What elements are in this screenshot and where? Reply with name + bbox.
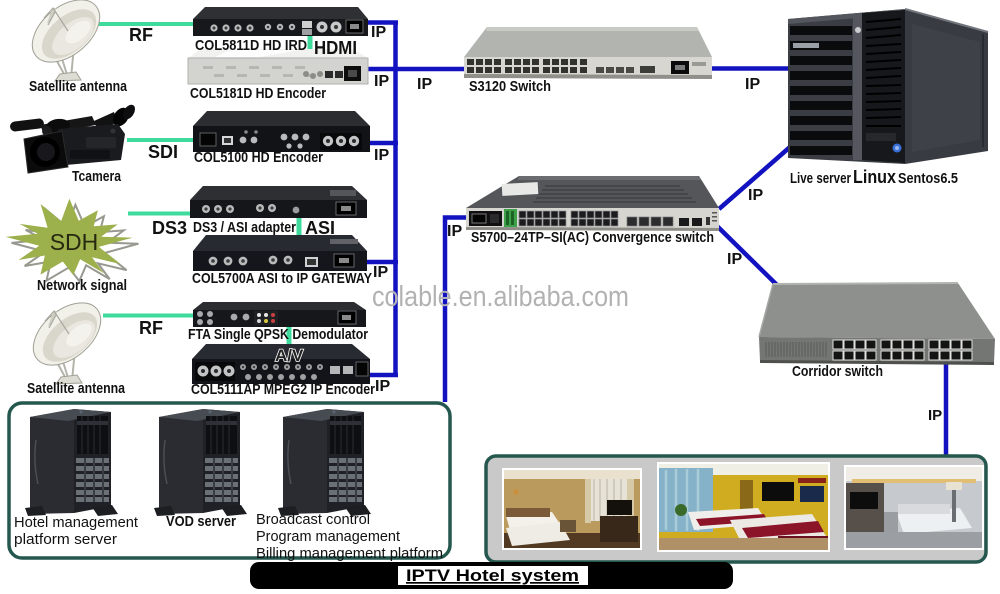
svg-text:VOD server: VOD server bbox=[166, 513, 236, 530]
svg-text:IP: IP bbox=[748, 187, 763, 204]
svg-text:Linux: Linux bbox=[853, 167, 896, 187]
svg-text:IP: IP bbox=[373, 264, 388, 281]
svg-text:Program management: Program management bbox=[256, 528, 401, 545]
svg-text:IPTV Hotel system: IPTV Hotel system bbox=[406, 566, 579, 585]
svg-text:IP: IP bbox=[727, 251, 742, 268]
svg-text:S3120 Switch: S3120 Switch bbox=[469, 78, 551, 95]
svg-text:Satellite antenna: Satellite antenna bbox=[29, 78, 128, 95]
svg-text:A/V: A/V bbox=[275, 346, 304, 365]
svg-text:SDI: SDI bbox=[148, 142, 178, 162]
svg-text:platform server: platform server bbox=[14, 531, 117, 548]
svg-text:COL5111AP MPEG2 IP Encoder: COL5111AP MPEG2 IP Encoder bbox=[191, 381, 375, 398]
svg-text:SDH: SDH bbox=[50, 229, 99, 255]
svg-text:IP: IP bbox=[745, 76, 760, 93]
svg-text:COL5700A ASI to IP GATEWAY: COL5700A ASI to IP GATEWAY bbox=[192, 270, 372, 287]
svg-text:Tcamera: Tcamera bbox=[72, 168, 122, 185]
svg-text:IP: IP bbox=[447, 223, 462, 240]
svg-text:FTA Single QPSK Demodulator: FTA Single QPSK Demodulator bbox=[188, 326, 368, 343]
svg-text:COL5100 HD Encoder: COL5100 HD Encoder bbox=[194, 149, 323, 166]
svg-text:Billing management platform: Billing management platform bbox=[256, 545, 443, 562]
svg-text:Live server: Live server bbox=[790, 171, 851, 187]
svg-text:Hotel management: Hotel management bbox=[14, 514, 139, 531]
svg-text:RF: RF bbox=[139, 318, 163, 338]
svg-text:Broadcast control: Broadcast control bbox=[256, 511, 370, 528]
svg-text:DS3: DS3 bbox=[152, 218, 187, 238]
svg-text:ASI: ASI bbox=[305, 218, 335, 238]
svg-text:IP: IP bbox=[374, 147, 389, 164]
svg-text:Satellite antenna: Satellite antenna bbox=[27, 380, 126, 397]
svg-text:IP: IP bbox=[417, 76, 432, 93]
svg-text:COL5181D HD Encoder: COL5181D HD Encoder bbox=[190, 85, 326, 102]
svg-text:Network signal: Network signal bbox=[37, 277, 127, 294]
svg-text:RF: RF bbox=[129, 25, 153, 45]
svg-text:COL5811D HD IRD: COL5811D HD IRD bbox=[195, 37, 307, 54]
svg-text:IP: IP bbox=[371, 24, 386, 41]
svg-text:DS3 / ASI adapter: DS3 / ASI adapter bbox=[193, 219, 296, 236]
svg-text:Sentos6.5: Sentos6.5 bbox=[898, 171, 958, 187]
svg-text:S5700–24TP–SI(AC) Convergence: S5700–24TP–SI(AC) Convergence switch bbox=[471, 229, 714, 246]
svg-text:IP: IP bbox=[375, 378, 390, 395]
svg-text:colable.en.alibaba.com: colable.en.alibaba.com bbox=[372, 281, 629, 313]
svg-text:IP: IP bbox=[374, 73, 389, 90]
svg-text:Corridor switch: Corridor switch bbox=[792, 363, 883, 380]
svg-text:HDMI: HDMI bbox=[314, 38, 357, 58]
svg-text:IP: IP bbox=[928, 407, 942, 424]
